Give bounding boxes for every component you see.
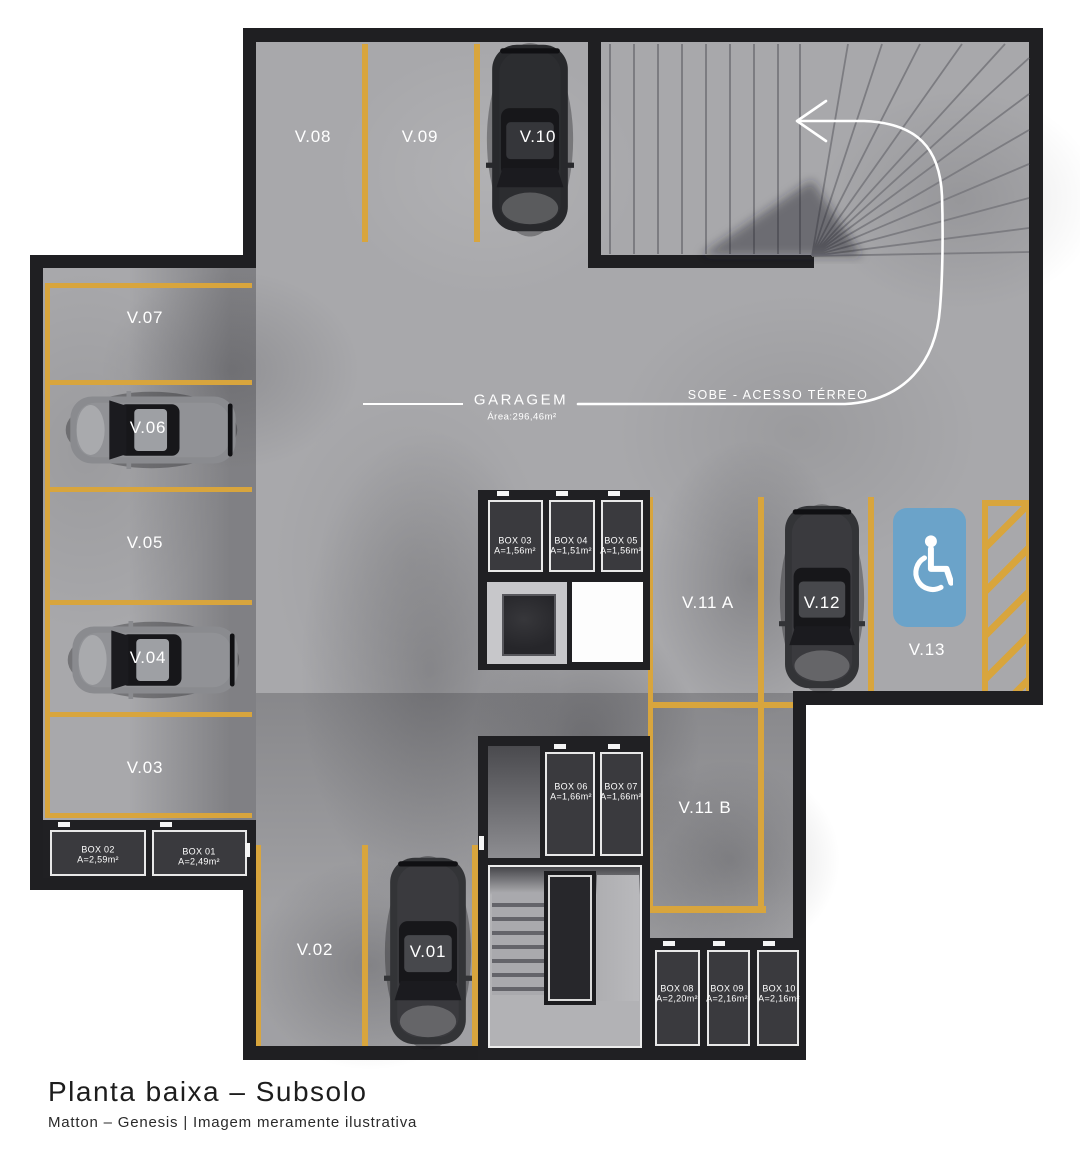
stall-label-v12: V.12 bbox=[804, 593, 841, 613]
box-label-07: BOX 07A=1,66m² bbox=[600, 782, 642, 803]
box-label-06: BOX 06A=1,66m² bbox=[550, 782, 592, 803]
box-label-03: BOX 03A=1,56m² bbox=[494, 536, 536, 557]
parking-line bbox=[648, 702, 794, 708]
box-label-04: BOX 04A=1,51m² bbox=[550, 536, 592, 557]
door-opening bbox=[554, 744, 566, 749]
parking-line bbox=[45, 600, 252, 605]
door-opening bbox=[763, 941, 775, 946]
box-room-07 bbox=[600, 752, 643, 856]
box-room-06 bbox=[545, 752, 595, 856]
garage-label: GARAGEM bbox=[474, 392, 568, 409]
hatched-no-parking-zone bbox=[982, 500, 1032, 702]
floor-plan-canvas: V.08 V.09 V.10 V.07 V.06 V.05 V.04 V.03 … bbox=[0, 0, 1080, 1166]
wall bbox=[30, 255, 256, 268]
box-label-02: BOX 02A=2,59m² bbox=[77, 845, 119, 866]
box-label-01: BOX 01A=2,49m² bbox=[178, 847, 220, 868]
utility-room bbox=[572, 582, 643, 662]
parking-line bbox=[45, 813, 252, 818]
door-opening bbox=[497, 491, 509, 496]
stall-label-v11a: V.11 A bbox=[682, 593, 734, 613]
page-subtitle: Matton – Genesis | Imagem meramente ilus… bbox=[48, 1114, 417, 1131]
parking-line bbox=[474, 44, 480, 242]
wall bbox=[30, 877, 256, 890]
stall-label-v01: V.01 bbox=[410, 942, 447, 962]
stall-label-v02: V.02 bbox=[297, 940, 334, 960]
parking-line bbox=[45, 487, 252, 492]
parking-line bbox=[256, 845, 261, 1046]
wall bbox=[243, 28, 256, 267]
accessible-parking-sign bbox=[893, 508, 966, 627]
stall-label-v08: V.08 bbox=[295, 127, 332, 147]
stair-landing bbox=[597, 875, 639, 1001]
wall bbox=[243, 28, 1043, 42]
wall bbox=[30, 255, 43, 890]
parking-line bbox=[45, 380, 252, 385]
stall-label-v07: V.07 bbox=[127, 308, 164, 328]
parking-line bbox=[45, 285, 50, 818]
wheelchair-icon bbox=[907, 531, 953, 605]
door-opening bbox=[160, 822, 172, 827]
wall-ramp bbox=[588, 42, 601, 268]
door-opening bbox=[58, 822, 70, 827]
wall-ramp bbox=[588, 255, 814, 268]
box-label-10: BOX 10A=2,16m² bbox=[758, 984, 800, 1005]
stall-label-v09: V.09 bbox=[402, 127, 439, 147]
page-title: Planta baixa – Subsolo bbox=[48, 1076, 417, 1108]
parking-line bbox=[45, 712, 252, 717]
stall-label-v10: V.10 bbox=[520, 127, 557, 147]
door-opening bbox=[479, 836, 484, 850]
floor-left-wing bbox=[43, 268, 256, 877]
door-opening bbox=[713, 941, 725, 946]
ramp-label: SOBE - ACESSO TÉRREO bbox=[688, 388, 869, 402]
stall-label-v06: V.06 bbox=[130, 418, 167, 438]
stall-label-v03: V.03 bbox=[127, 758, 164, 778]
door-opening bbox=[608, 744, 620, 749]
parking-line bbox=[362, 845, 368, 1046]
garage-area-label: Área:296,46m² bbox=[487, 412, 556, 423]
parking-line bbox=[868, 497, 874, 703]
stall-label-v13: V.13 bbox=[909, 640, 946, 660]
stall-label-v04: V.04 bbox=[130, 648, 167, 668]
parking-line bbox=[362, 44, 368, 242]
elevator-shaft bbox=[502, 594, 556, 656]
door-opening bbox=[556, 491, 568, 496]
door-opening bbox=[608, 491, 620, 496]
stair-treads bbox=[492, 893, 547, 995]
box-label-05: BOX 05A=1,56m² bbox=[600, 536, 642, 557]
stall-label-v05: V.05 bbox=[127, 533, 164, 553]
wall bbox=[243, 886, 256, 1058]
box-label-08: BOX 08A=2,20m² bbox=[656, 984, 698, 1005]
door-opening bbox=[245, 843, 250, 857]
parking-line bbox=[45, 283, 252, 288]
box-label-09: BOX 09A=2,16m² bbox=[706, 984, 748, 1005]
core-corridor bbox=[488, 746, 540, 858]
door-opening bbox=[663, 941, 675, 946]
stair-room bbox=[488, 865, 642, 1048]
parking-line bbox=[648, 906, 766, 913]
stairwell-void bbox=[548, 875, 592, 1001]
title-block: Planta baixa – Subsolo Matton – Genesis … bbox=[48, 1076, 417, 1131]
stall-label-v11b: V.11 B bbox=[678, 798, 731, 818]
wall bbox=[1029, 28, 1043, 705]
